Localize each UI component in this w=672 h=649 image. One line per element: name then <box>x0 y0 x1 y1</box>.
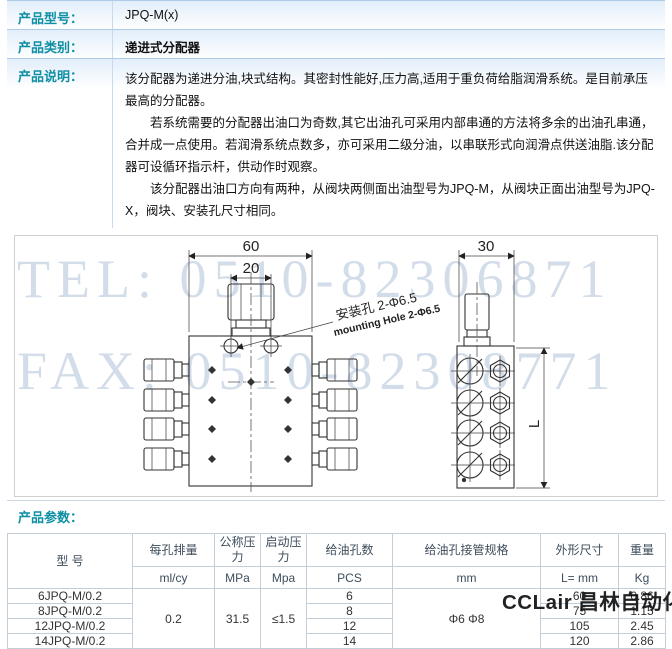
description-paragraph: 若系统需要的分配器出油口为奇数,其它出油孔可采用内部串通的方法将多余的出油孔串通… <box>125 112 655 178</box>
dim-L-label: L <box>526 420 543 428</box>
col-header-weight: 重量 <box>619 534 666 567</box>
product-model-value: JPQ-M(x) <box>113 1 188 29</box>
cell-displacement: 0.2 <box>133 589 215 649</box>
cell-model: 12JPQ-M/0.2 <box>8 619 133 634</box>
cell-nominal-pressure: 31.5 <box>215 589 261 649</box>
cell-model: 14JPQ-M/0.2 <box>8 634 133 649</box>
dim-30-label: 30 <box>478 238 495 255</box>
cell-start-pressure: ≤1.5 <box>261 589 307 649</box>
col-header-model: 型 号 <box>8 534 133 589</box>
distributor-drawing: 60 20 安装孔 2-Φ6.5 mounting Hole 2-Φ6.5 <box>15 236 658 496</box>
unit-oil-holes: PCS <box>307 567 393 589</box>
cell-model: 6JPQ-M/0.2 <box>8 589 133 604</box>
outlet-fitting <box>144 448 189 470</box>
params-title: 产品参数： <box>18 510 83 525</box>
col-header-pipe-spec: 给油孔接管规格 <box>393 534 541 567</box>
unit-nominal-pressure: MPa <box>215 567 261 589</box>
outlet-fitting <box>312 389 357 411</box>
params-title-row: 产品参数： <box>7 500 665 531</box>
table-row: 12JPQ-M/0.2 12 105 2.45 <box>8 619 666 634</box>
front-view: 60 20 安装孔 2-Φ6.5 mounting Hole 2-Φ6.5 <box>144 238 442 492</box>
outlet-fitting <box>312 418 357 440</box>
outlet-fitting <box>144 418 189 440</box>
technical-drawing-panel: TEL: 0510-82306871 FAX: 0510-82308771 <box>14 235 658 497</box>
cell-holes: 14 <box>307 634 393 649</box>
cell-model: 8JPQ-M/0.2 <box>8 604 133 619</box>
product-category-row: 产品类别： 递进式分配器 <box>7 29 665 58</box>
dim-60-label: 60 <box>243 238 260 255</box>
outlet-fitting <box>144 359 189 381</box>
product-description-row: 产品说明： 该分配器为递进分油,块式结构。其密封性能好,压力高,适用于重负荷给脂… <box>7 58 665 228</box>
product-description-text: 该分配器为递进分油,块式结构。其密封性能好,压力高,适用于重负荷给脂润滑系统。是… <box>113 59 665 228</box>
cell-weight: 2.86 <box>619 634 666 649</box>
col-header-oil-holes: 给油孔数 <box>307 534 393 567</box>
cell-length: 120 <box>541 634 619 649</box>
port-row <box>451 416 515 450</box>
col-header-start-pressure: 启动压力 <box>261 534 307 567</box>
col-header-displacement: 每孔排量 <box>133 534 215 567</box>
product-category-value: 递进式分配器 <box>113 30 210 58</box>
port-row <box>451 448 515 482</box>
unit-displacement: ml/cy <box>133 567 215 589</box>
outlet-fitting <box>312 448 357 470</box>
table-row: 14JPQ-M/0.2 14 120 2.86 <box>8 634 666 649</box>
description-paragraph: 该分配器为递进分油,块式结构。其密封性能好,压力高,适用于重负荷给脂润滑系统。是… <box>125 68 655 112</box>
port-row <box>451 386 515 420</box>
unit-start-pressure: Mpa <box>261 567 307 589</box>
product-description-label: 产品说明： <box>7 59 113 228</box>
product-datasheet: 产品型号： JPQ-M(x) 产品类别： 递进式分配器 产品说明： 该分配器为递… <box>7 0 665 649</box>
cell-holes: 6 <box>307 589 393 604</box>
cell-holes: 12 <box>307 619 393 634</box>
mounting-hole <box>260 335 282 357</box>
bolt-marks <box>208 366 292 463</box>
description-paragraph: 该分配器出油口方向有两种，从阀块两侧面出油型号为JPQ-M，从阀块正面出油型号为… <box>125 178 655 222</box>
side-view: 30 L <box>451 238 550 488</box>
mounting-hole <box>220 335 242 357</box>
col-header-nominal-pressure: 公称压力 <box>215 534 261 567</box>
product-model-row: 产品型号： JPQ-M(x) <box>7 0 665 29</box>
outlet-fitting <box>312 359 357 381</box>
cell-length: 105 <box>541 619 619 634</box>
brand-watermark: CCLair 昌林自动化 <box>502 585 672 615</box>
product-category-label: 产品类别： <box>7 30 113 58</box>
cell-holes: 8 <box>307 604 393 619</box>
col-header-dimensions: 外形尺寸 <box>541 534 619 567</box>
cell-weight: 2.45 <box>619 619 666 634</box>
port-row <box>451 354 515 388</box>
product-model-label: 产品型号： <box>7 1 113 29</box>
outlet-fitting <box>144 389 189 411</box>
dim-20-label: 20 <box>243 260 260 277</box>
